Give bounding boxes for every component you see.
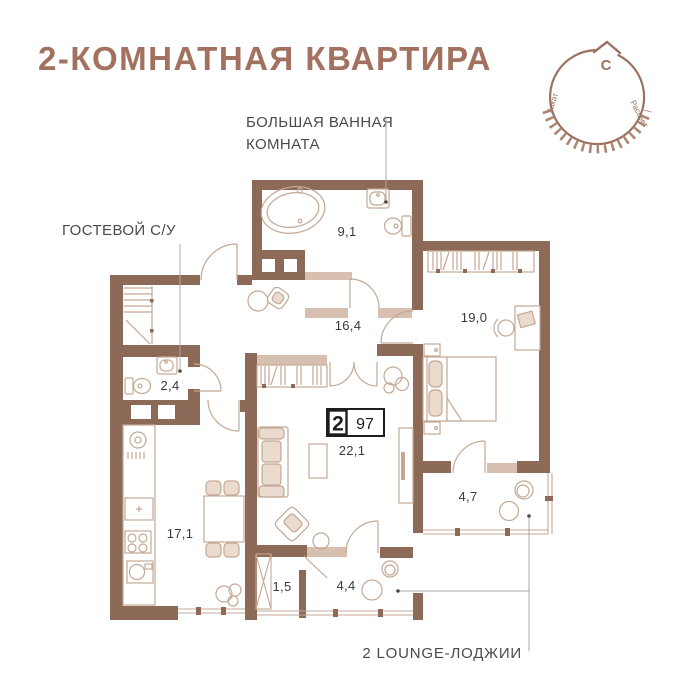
area-label-bedroom: 19,0	[461, 310, 488, 325]
compass-circle	[550, 50, 644, 144]
rooms-area-badge: 2 97	[327, 409, 384, 436]
living-double-door	[330, 362, 377, 386]
tv-unit-icon	[399, 428, 413, 503]
leader-lounge	[398, 518, 529, 651]
wc-sink-icon	[157, 357, 177, 374]
desk-icon	[494, 306, 540, 350]
closet-shelves-icon	[124, 286, 154, 344]
area-label-living: 22,1	[339, 443, 366, 458]
wc-toilet-icon	[125, 378, 151, 394]
hall-table-icon	[248, 291, 268, 311]
north-label: С	[601, 57, 612, 74]
bathtub-icon	[257, 182, 328, 238]
loggia-right-chair-icon	[515, 481, 533, 499]
bedroom-loggia-door	[453, 441, 485, 473]
area-label-hallway: 16,4	[335, 318, 362, 333]
side-table-icon	[309, 444, 327, 478]
area-label-loggia-small: 1,5	[273, 579, 292, 594]
area-label-big-bathroom: 9,1	[338, 224, 357, 239]
bathroom-door	[350, 279, 379, 308]
area-label-loggia-right: 4,7	[459, 489, 478, 504]
north-arrow-icon	[594, 42, 620, 53]
badge-rooms-count: 2	[332, 413, 344, 436]
armchair-icon	[274, 506, 311, 543]
loggia-lounge-table-icon	[362, 580, 382, 600]
entrance-door	[201, 244, 237, 280]
area-label-guest-wc: 2,4	[161, 378, 180, 393]
loggia-right-table-icon	[500, 502, 519, 521]
kitchen-plant-icon	[216, 584, 241, 606]
area-label-loggia-lounge: 4,4	[337, 578, 356, 593]
sofa-icon	[258, 427, 288, 497]
sunrise-label: Рассвет	[628, 99, 650, 130]
floor-plan-page: 2-КОМНАТНАЯ КВАРТИРА БОЛЬШАЯ ВАННАЯ КОМН…	[0, 0, 699, 700]
kitchen-counter-icon	[123, 425, 155, 605]
floor-plan: С Закат Рассвет	[0, 0, 699, 700]
living-plant-icon	[384, 367, 409, 393]
area-label-kitchen: 17,1	[167, 526, 194, 541]
wc-door	[194, 364, 221, 391]
bathroom-toilet-icon	[385, 216, 412, 236]
loggia-lounge-chair-icon	[382, 561, 398, 577]
hall-chair-icon	[265, 285, 290, 310]
badge-total-area: 97	[356, 416, 374, 433]
coffee-table-icon	[313, 533, 329, 549]
bedroom-wardrobe-icon	[428, 251, 534, 273]
dining-table-icon	[204, 481, 244, 557]
loggia-divider-door	[304, 556, 327, 578]
compass: С Закат Рассвет	[545, 42, 650, 149]
living-loggia-door	[346, 521, 378, 553]
bed-icon	[423, 357, 496, 421]
kitchen-door	[208, 400, 239, 431]
sunset-label: Закат	[545, 92, 560, 115]
living-wardrobe-icon	[257, 365, 327, 388]
